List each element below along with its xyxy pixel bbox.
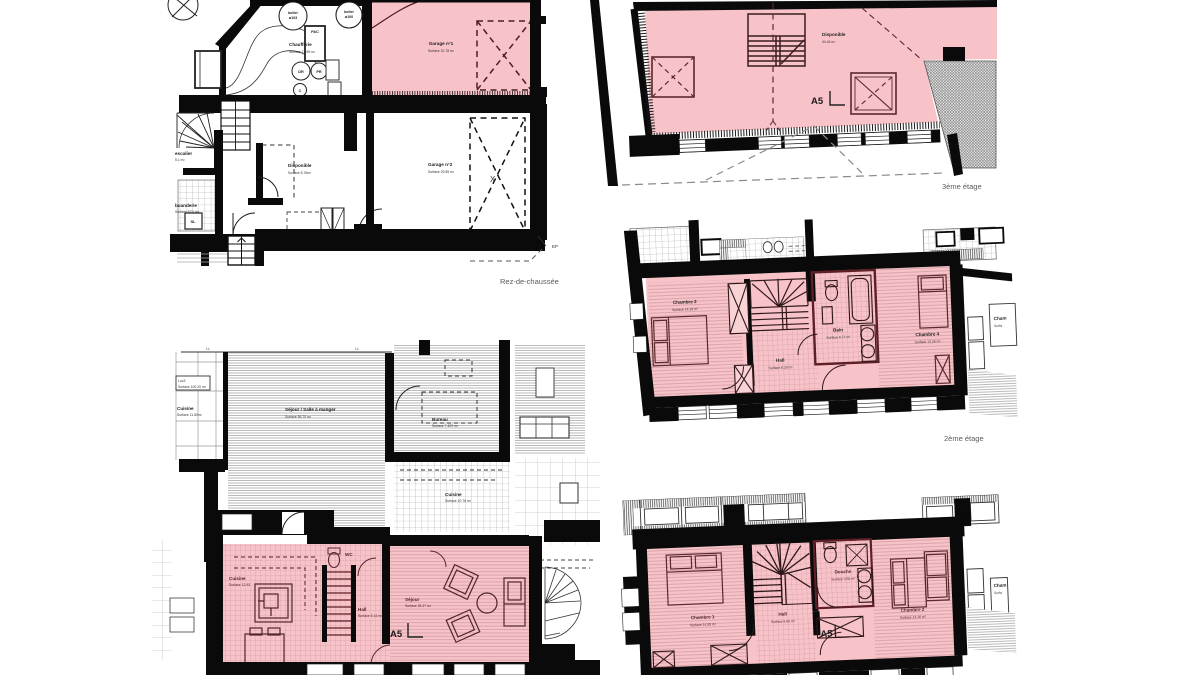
svg-text:Surface 55.70 m²: Surface 55.70 m² xyxy=(285,415,312,419)
svg-text:Surface 12.93: Surface 12.93 xyxy=(229,583,250,587)
svg-text:Rez-de-chaussée: Rez-de-chaussée xyxy=(500,277,559,286)
svg-text:ø103: ø103 xyxy=(289,16,297,20)
svg-text:Séjour / Salle à manger: Séjour / Salle à manger xyxy=(285,407,336,412)
svg-text:Douche: Douche xyxy=(834,569,851,575)
svg-text:Hall: Hall xyxy=(778,611,787,616)
svg-text:Disponible: Disponible xyxy=(822,32,846,37)
svg-text:Surface 17.95 m²: Surface 17.95 m² xyxy=(289,50,316,54)
svg-text:Surface 100.20 m²: Surface 100.20 m² xyxy=(178,385,207,389)
svg-text:DR: DR xyxy=(298,70,304,74)
svg-text:44.44 m²: 44.44 m² xyxy=(822,40,836,44)
svg-text:Hall: Hall xyxy=(776,358,785,363)
svg-text:WC: WC xyxy=(345,552,353,557)
svg-text:Surface 10.76 m²: Surface 10.76 m² xyxy=(445,499,472,503)
svg-text:Surface 7.420 m²: Surface 7.420 m² xyxy=(432,424,459,428)
svg-text:Chambre 1: Chambre 1 xyxy=(691,614,715,620)
svg-text:EP: EP xyxy=(552,244,558,249)
svg-text:A5: A5 xyxy=(811,96,824,107)
svg-text:Bain: Bain xyxy=(833,327,843,332)
svg-text:Surface 29.85 m²: Surface 29.85 m² xyxy=(428,170,455,174)
svg-text:Chambre 2: Chambre 2 xyxy=(673,299,697,305)
svg-text:Surface 25.47 m²: Surface 25.47 m² xyxy=(405,604,432,608)
svg-text:2ème étage: 2ème étage xyxy=(944,434,984,443)
svg-text:Chambre 2: Chambre 2 xyxy=(901,607,925,613)
svg-text:buanderie: buanderie xyxy=(175,203,197,208)
svg-text:PAC: PAC xyxy=(311,30,319,34)
svg-text:ø100: ø100 xyxy=(345,15,353,19)
svg-text:X: X xyxy=(490,175,496,184)
svg-text:LL: LL xyxy=(206,346,211,351)
svg-text:A5: A5 xyxy=(390,629,403,640)
svg-text:Cham: Cham xyxy=(994,583,1007,589)
svg-text:Surfa: Surfa xyxy=(994,591,1002,595)
svg-text:Garage n°2: Garage n°2 xyxy=(428,162,453,167)
svg-text:PR: PR xyxy=(316,70,322,74)
svg-text:escalier: escalier xyxy=(175,151,192,156)
svg-text:Disponible: Disponible xyxy=(288,163,312,168)
svg-text:Chambre 4: Chambre 4 xyxy=(915,331,939,337)
svg-text:Surface 31.78 m²: Surface 31.78 m² xyxy=(428,49,455,53)
svg-text:Cuisine: Cuisine xyxy=(445,492,462,497)
svg-text:C: C xyxy=(299,89,302,93)
svg-text:Cham: Cham xyxy=(994,316,1007,322)
svg-text:SL: SL xyxy=(190,219,196,224)
svg-text:Bureau: Bureau xyxy=(432,417,448,422)
svg-text:Séjour: Séjour xyxy=(405,597,420,602)
svg-text:Hall: Hall xyxy=(358,607,366,612)
svg-text:Surface 8.76m²: Surface 8.76m² xyxy=(288,171,312,175)
svg-text:5.1 m²: 5.1 m² xyxy=(175,158,185,162)
svg-text:boiler: boiler xyxy=(344,10,354,14)
svg-text:boiler: boiler xyxy=(288,11,298,15)
svg-text:Garage n°1: Garage n°1 xyxy=(429,41,454,46)
svg-text:Surface 5.14 m²: Surface 5.14 m² xyxy=(358,614,383,618)
svg-text:3ème étage: 3ème étage xyxy=(942,182,982,191)
svg-text:Cuisine: Cuisine xyxy=(177,406,194,411)
svg-text:Cuisine: Cuisine xyxy=(229,576,246,581)
svg-text:LL: LL xyxy=(355,346,360,351)
svg-text:Chaufferie: Chaufferie xyxy=(289,42,312,47)
svg-text:Loc3: Loc3 xyxy=(178,379,185,383)
svg-text:Surfa: Surfa xyxy=(994,324,1002,328)
svg-text:Surface 11.80m²: Surface 11.80m² xyxy=(177,413,203,417)
